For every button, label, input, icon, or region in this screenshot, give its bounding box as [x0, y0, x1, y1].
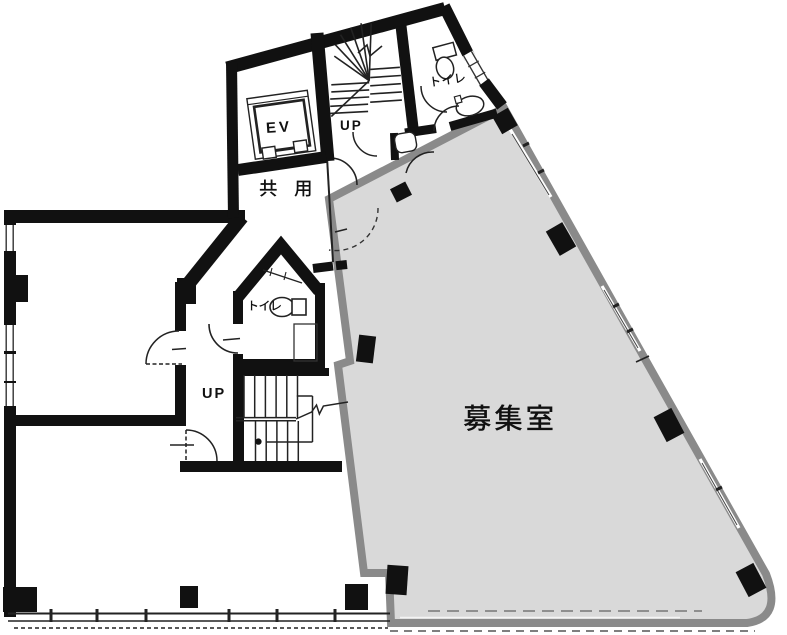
svg-text:UP: UP: [202, 386, 226, 402]
svg-text:EV: EV: [265, 118, 292, 137]
svg-text:UP: UP: [340, 118, 363, 133]
